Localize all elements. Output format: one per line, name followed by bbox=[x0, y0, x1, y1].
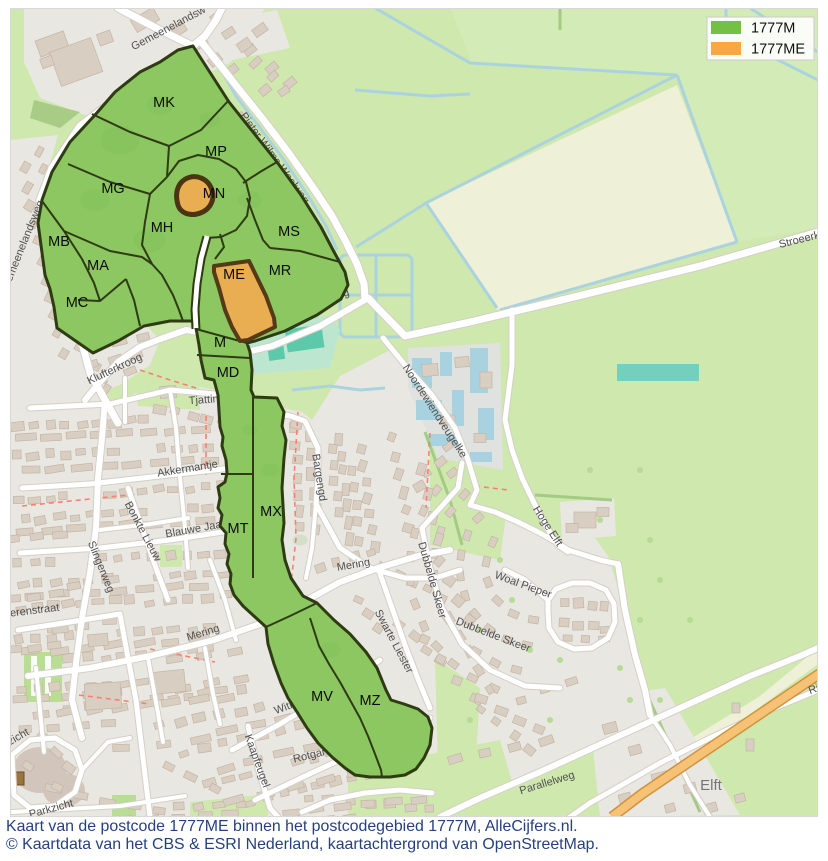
svg-text:MD: MD bbox=[217, 365, 240, 381]
svg-text:MH: MH bbox=[151, 220, 174, 236]
svg-text:MV: MV bbox=[311, 689, 333, 705]
svg-text:MA: MA bbox=[87, 258, 109, 274]
svg-text:MN: MN bbox=[203, 186, 226, 202]
svg-text:MS: MS bbox=[278, 224, 300, 240]
svg-text:MK: MK bbox=[153, 95, 175, 111]
svg-text:1777ME: 1777ME bbox=[751, 42, 805, 58]
svg-text:MG: MG bbox=[101, 181, 124, 197]
svg-text:MT: MT bbox=[228, 521, 249, 537]
svg-text:MR: MR bbox=[269, 263, 292, 279]
svg-text:MP: MP bbox=[205, 144, 227, 160]
svg-text:MB: MB bbox=[48, 234, 70, 250]
svg-text:MZ: MZ bbox=[360, 693, 381, 709]
svg-text:MC: MC bbox=[66, 295, 89, 311]
svg-text:ME: ME bbox=[223, 267, 245, 283]
svg-text:M: M bbox=[214, 335, 226, 351]
svg-text:MX: MX bbox=[260, 504, 282, 520]
svg-text:Elft: Elft bbox=[700, 777, 723, 794]
svg-text:1777M: 1777M bbox=[751, 21, 795, 37]
